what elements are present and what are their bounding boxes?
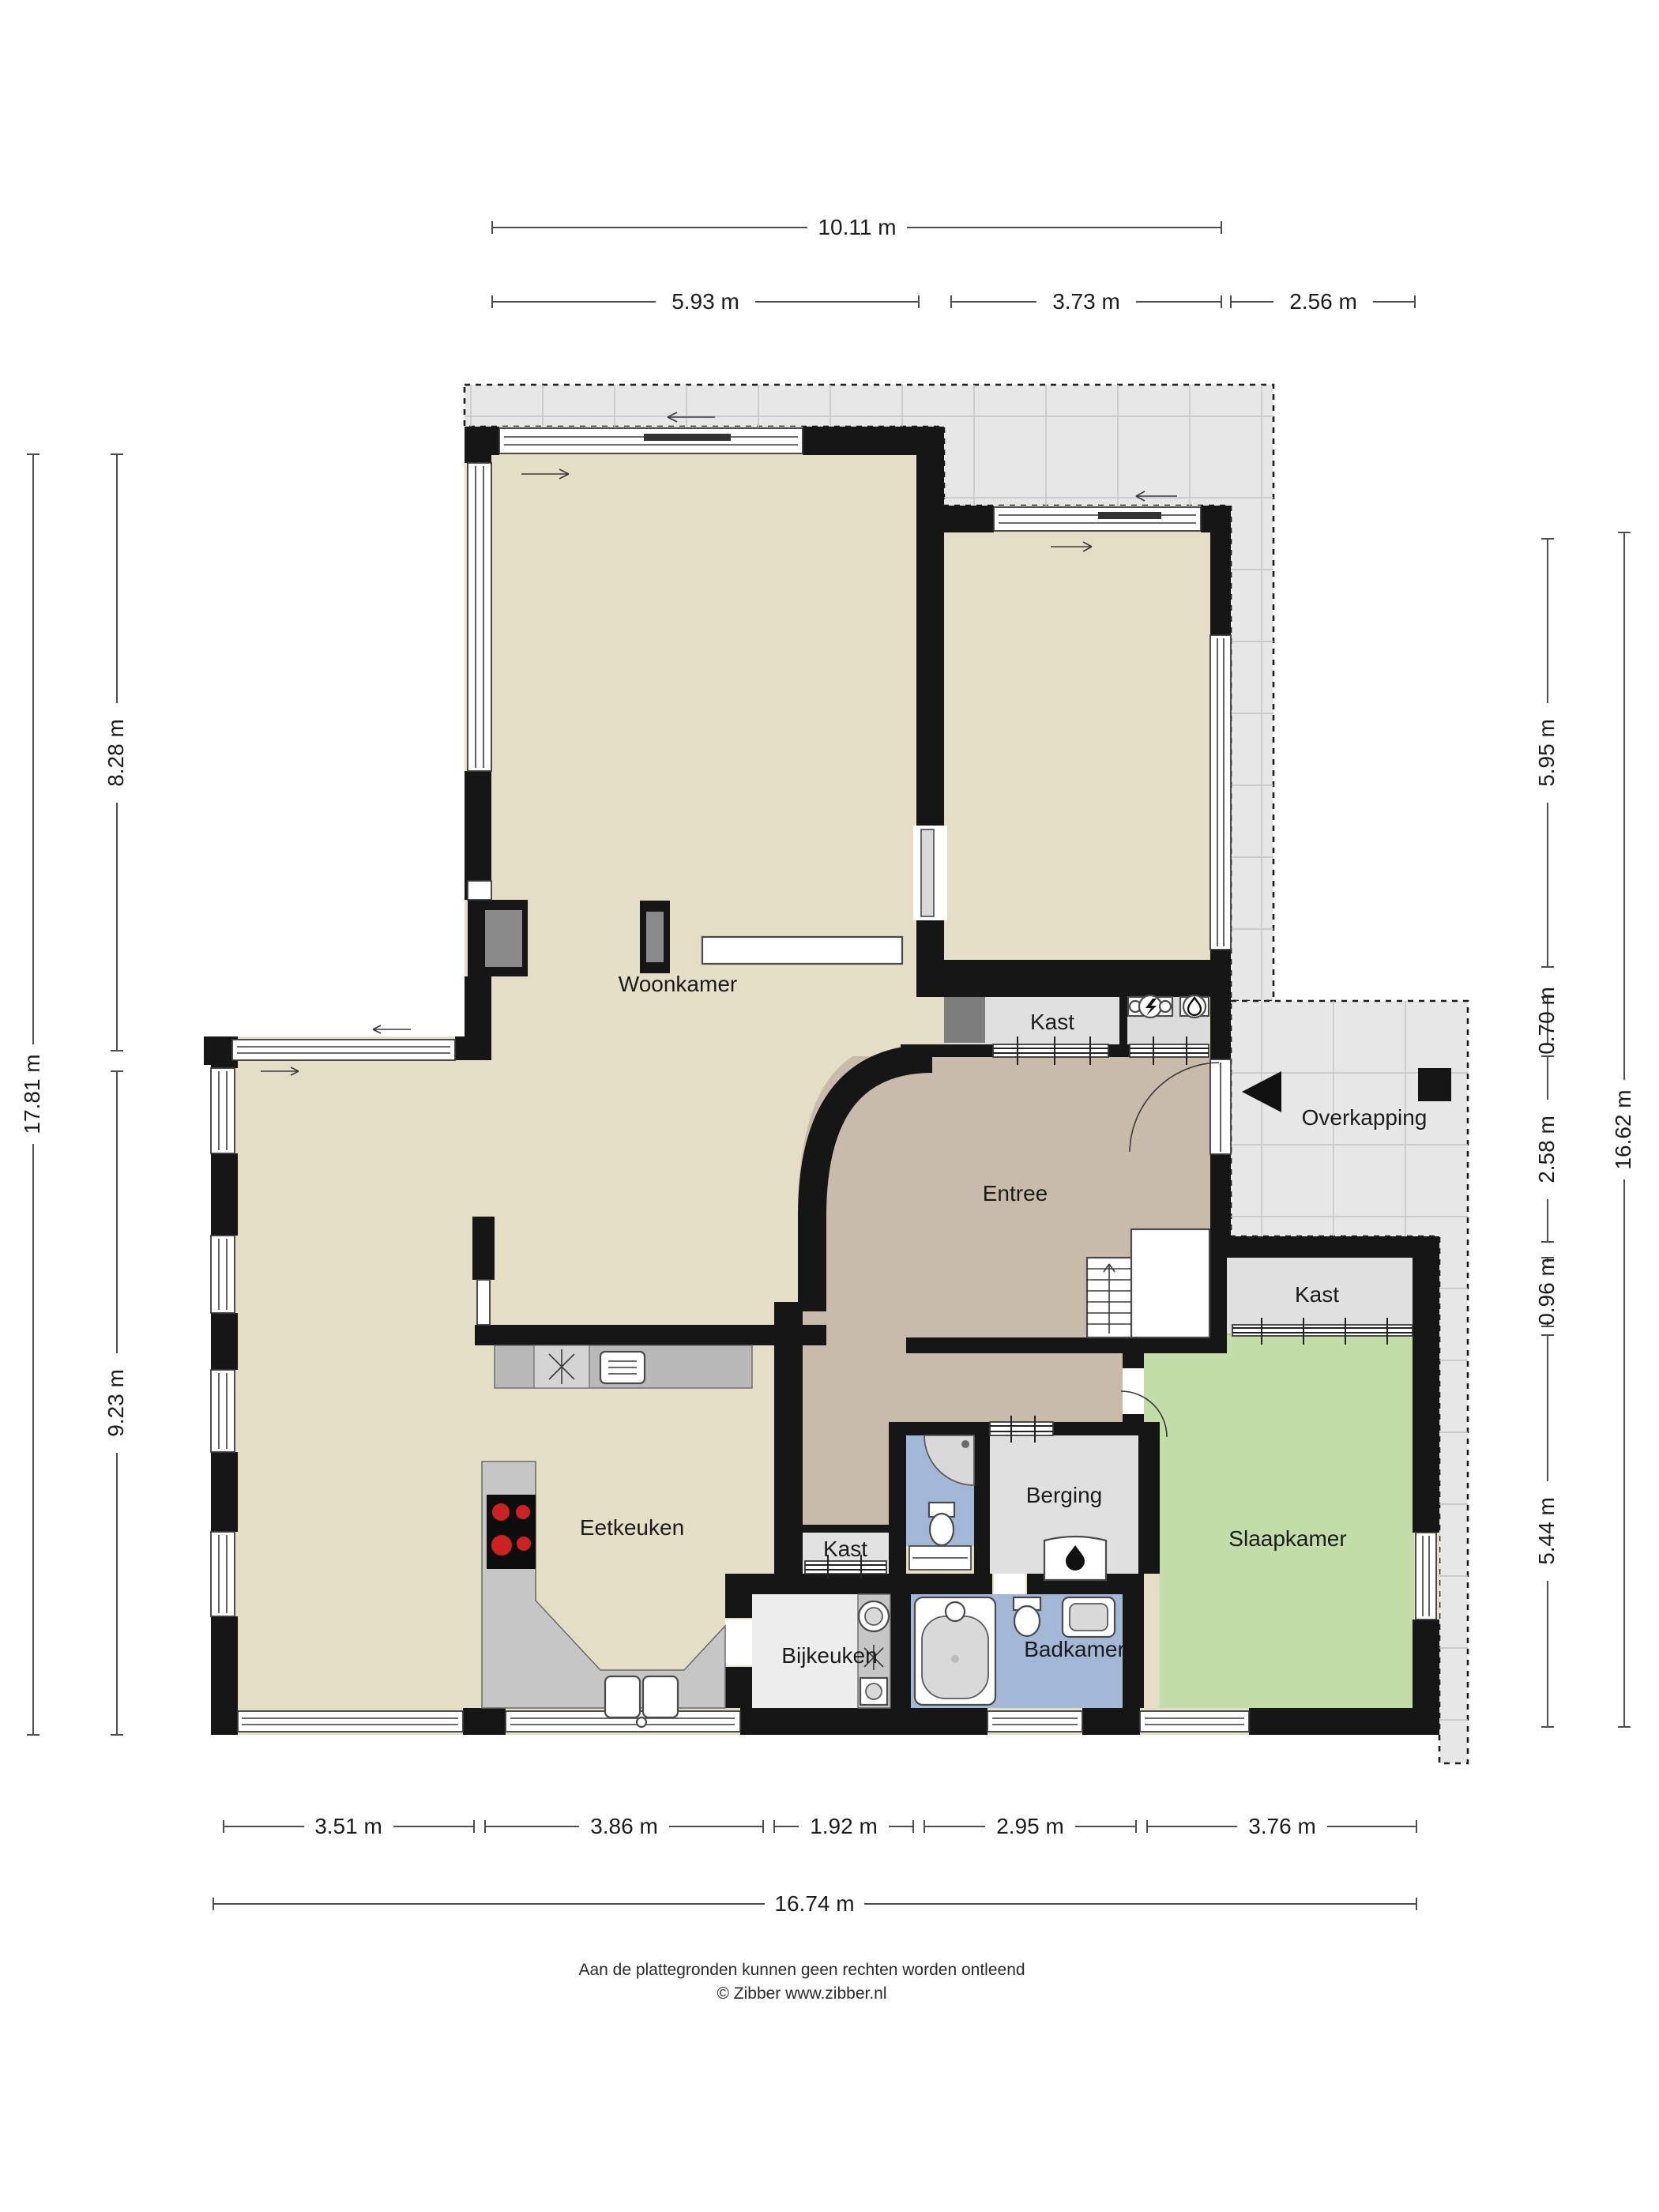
dim-left-segments	[111, 454, 123, 1735]
dim-label: 16.74 m	[774, 1891, 854, 1916]
dim-label: 0.70 m	[1534, 987, 1559, 1055]
floor-slaapkamer	[1144, 1335, 1414, 1708]
glass-panel	[477, 1280, 490, 1325]
label-badkamer: Badkamer	[1024, 1637, 1125, 1661]
window	[1210, 635, 1231, 950]
column-inner	[646, 912, 664, 962]
label-overkapping: Overkapping	[1302, 1105, 1428, 1130]
footer-copyright: © Zibber www.zibber.nl	[717, 1984, 886, 2003]
kitchen-sink	[605, 1676, 640, 1717]
electric-meter-icon	[1128, 995, 1172, 1018]
toilet-fixture	[1014, 1597, 1040, 1636]
label-kast-gang: Kast	[823, 1537, 867, 1561]
label-slaapkamer: Slaapkamer	[1228, 1526, 1346, 1551]
slide-arrow-icon	[373, 1025, 411, 1033]
bathtub	[915, 1597, 995, 1705]
dim-label: 8.28 m	[103, 719, 128, 787]
toilet-fixture	[929, 1503, 954, 1545]
door-bijkeuken	[725, 1619, 752, 1665]
dim-label: 1.92 m	[810, 1814, 878, 1838]
label-eetkeuken: Eetkeuken	[580, 1515, 684, 1540]
dim-label: 5.95 m	[1534, 719, 1559, 787]
overkapping-pillar	[1418, 1068, 1451, 1101]
bathroom-sink	[1063, 1597, 1115, 1637]
boiler	[1044, 1537, 1106, 1580]
footer: Aan de plattegronden kunnen geen rechten…	[578, 1961, 1025, 2003]
cooktop	[487, 1495, 536, 1569]
dim-label: 3.73 m	[1052, 289, 1120, 314]
shaft	[944, 997, 985, 1043]
kitchen-sink	[643, 1676, 678, 1717]
sideboard	[702, 937, 902, 964]
gas-meter-icon	[1180, 995, 1209, 1018]
kitchen-counter-top	[495, 1345, 752, 1388]
dim-label: 3.86 m	[590, 1814, 658, 1838]
label-kast-slaapkamer: Kast	[1295, 1282, 1339, 1307]
dim-label: 2.58 m	[1534, 1115, 1559, 1183]
dim-label: 16.62 m	[1611, 1089, 1635, 1169]
label-woonkamer: Woonkamer	[619, 972, 737, 996]
dim-label: 3.51 m	[314, 1814, 382, 1838]
dim-label: 2.56 m	[1289, 289, 1357, 314]
dim-label: 0.96 m	[1534, 1258, 1559, 1326]
door-badkamer	[994, 1574, 1025, 1594]
dim-label: 9.23 m	[103, 1369, 128, 1437]
floorplan-canvas: Woonkamer Eetkeuken Entree Overkapping S…	[0, 0, 1659, 2212]
label-berging: Berging	[1026, 1483, 1103, 1507]
label-entree: Entree	[983, 1181, 1048, 1206]
dim-label: 10.11 m	[818, 215, 896, 239]
chimney-inner	[485, 910, 522, 967]
dim-label: 2.95 m	[996, 1814, 1064, 1838]
dim-label: 5.93 m	[671, 289, 739, 314]
door-toilet	[909, 1546, 971, 1570]
dim-label: 17.81 m	[20, 1054, 44, 1134]
footer-disclaimer: Aan de plattegronden kunnen geen rechten…	[578, 1961, 1025, 1979]
dim-label: 5.44 m	[1534, 1497, 1559, 1565]
label-kast-hal: Kast	[1030, 1010, 1074, 1034]
label-bijkeuken: Bijkeuken	[781, 1643, 877, 1668]
pocket-door	[913, 826, 947, 920]
dim-label: 3.76 m	[1248, 1814, 1316, 1838]
dim-top-segments	[492, 295, 1415, 308]
